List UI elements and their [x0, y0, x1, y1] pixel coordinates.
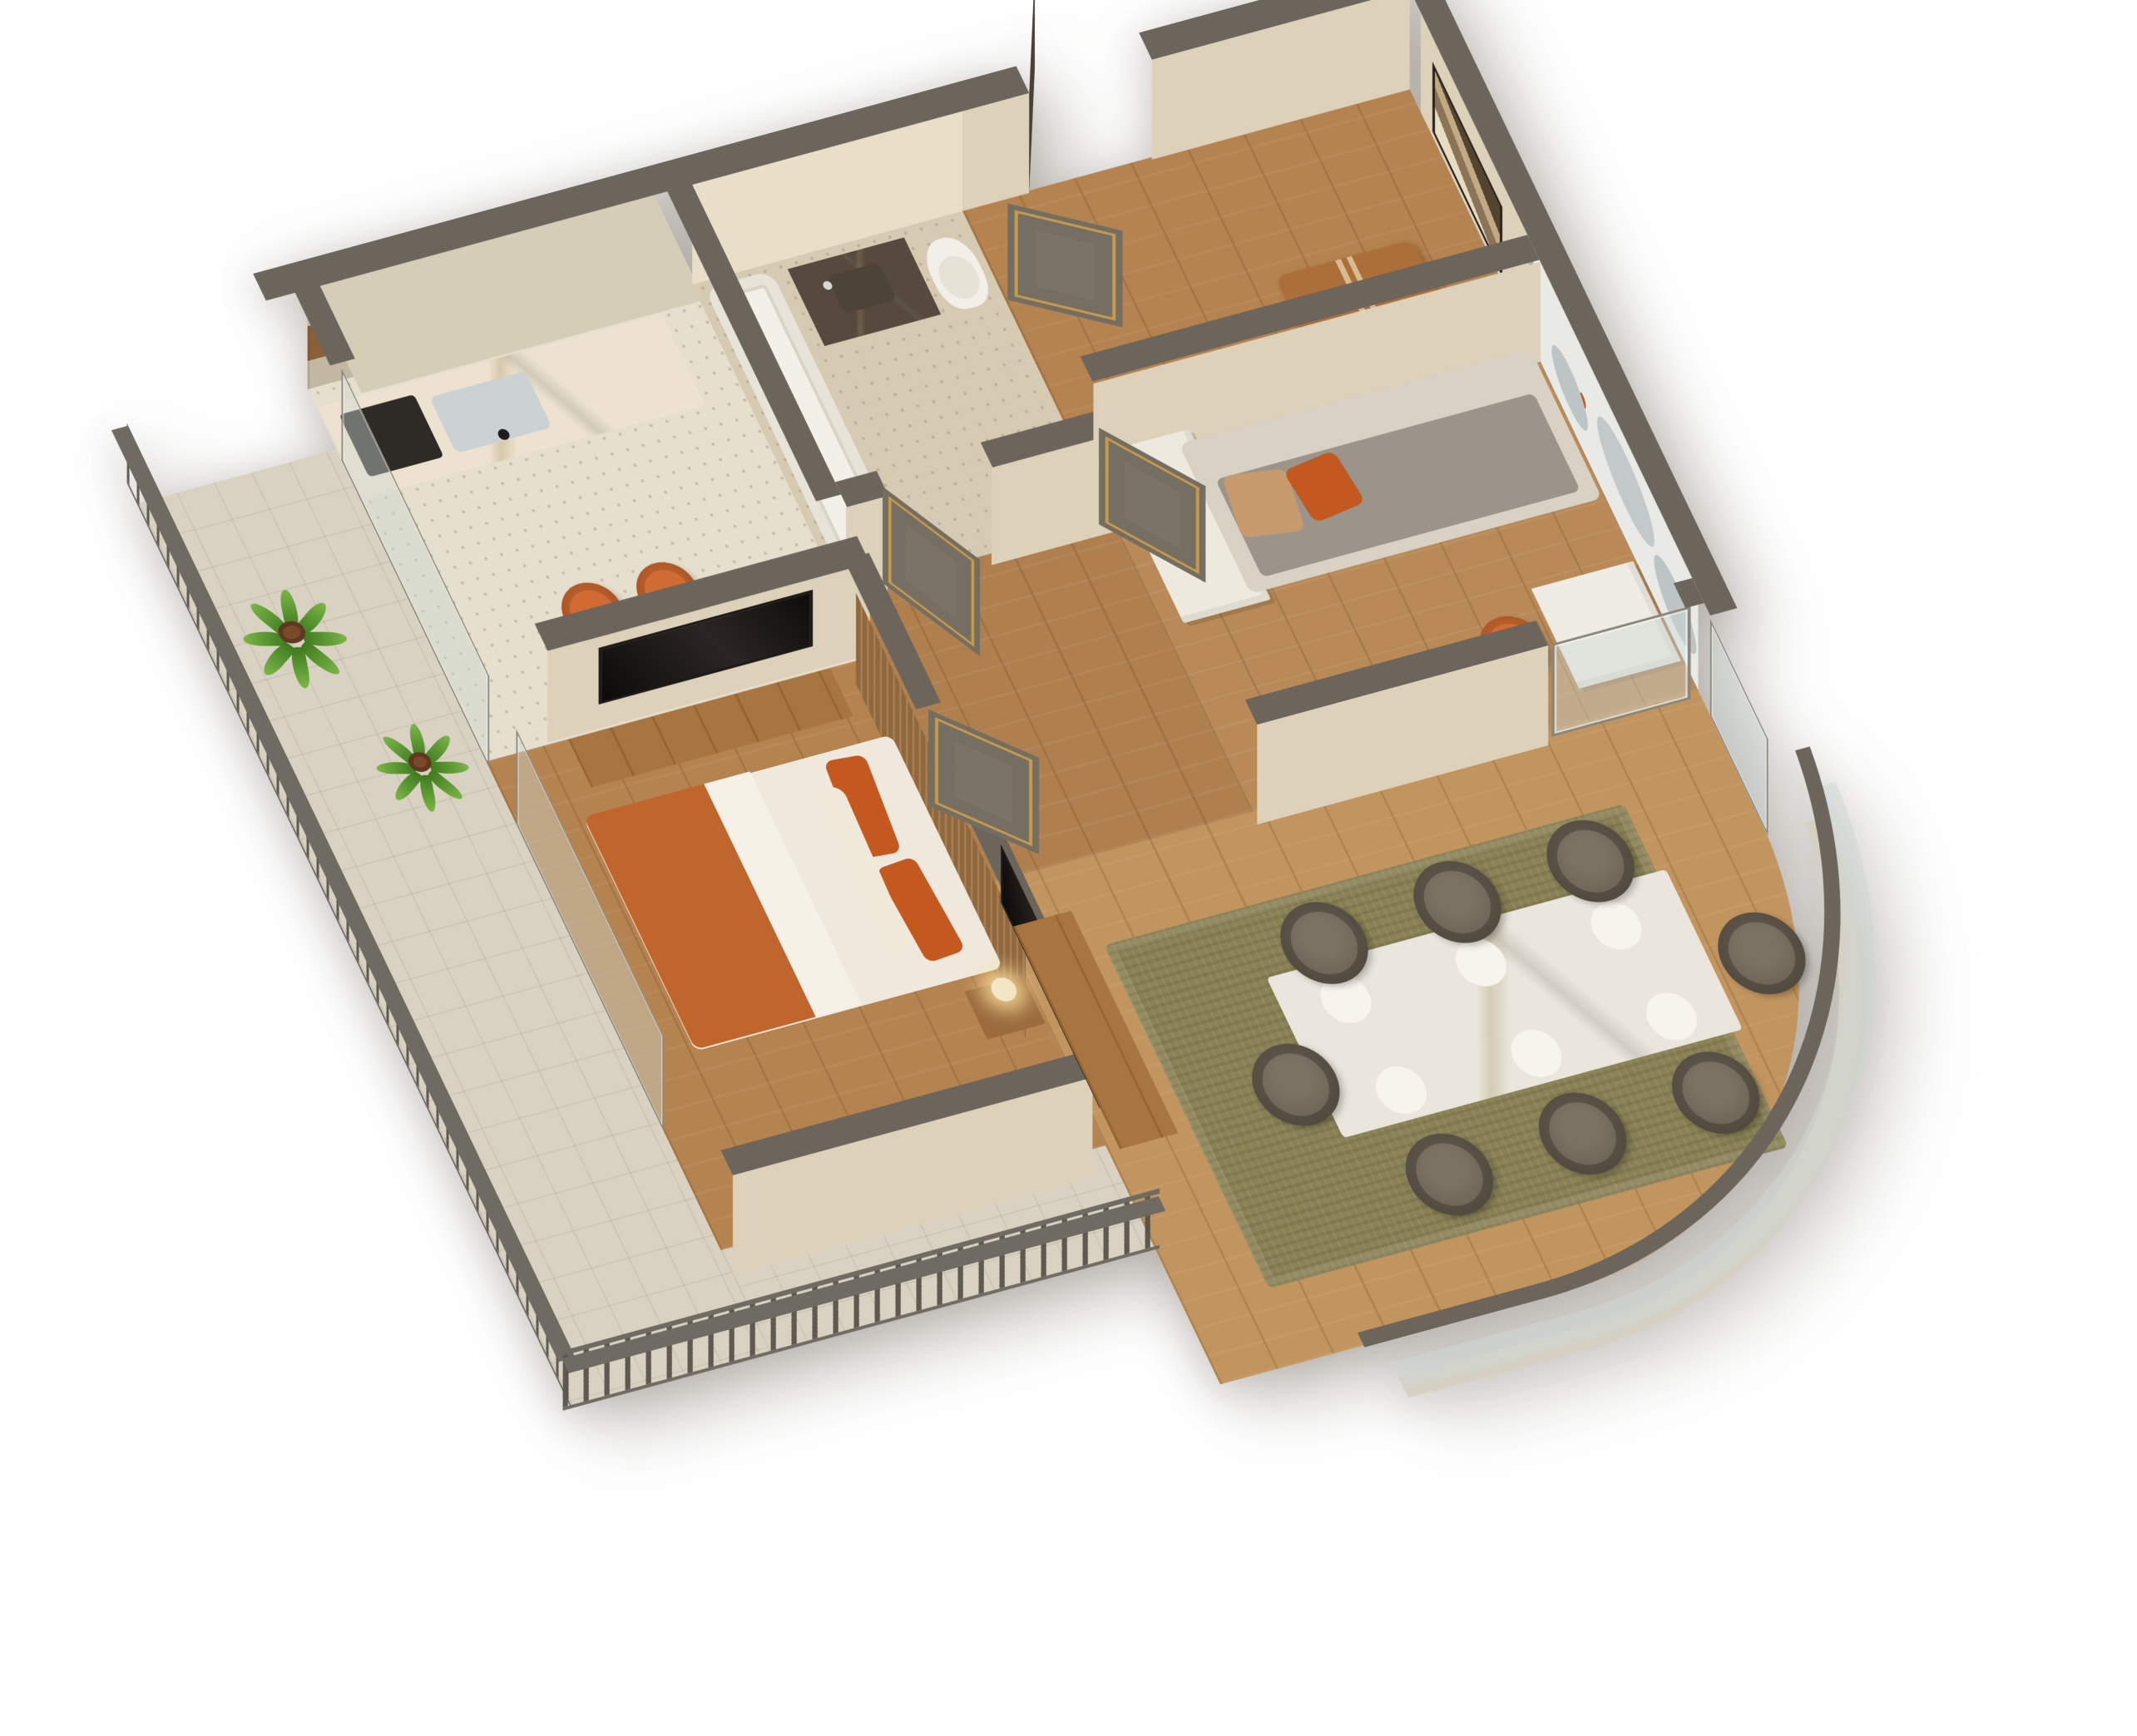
- entry-north-wall-face-a: [962, 93, 1029, 211]
- floor-plan-render: [0, 0, 2137, 1736]
- apartment-plan: [109, 87, 1938, 1543]
- entry-door: [1029, 0, 1035, 193]
